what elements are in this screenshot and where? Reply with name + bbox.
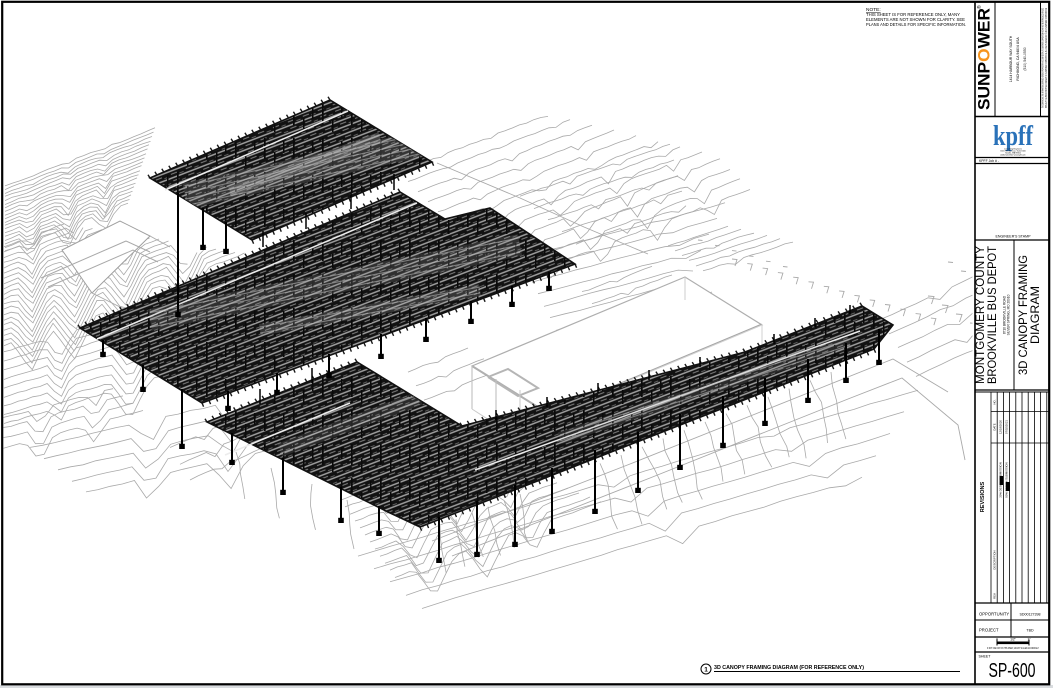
svg-text:SP-600: SP-600 bbox=[989, 660, 1036, 682]
svg-text:SD00127398: SD00127398 bbox=[1020, 613, 1041, 617]
svg-text:3D CANOPY FRAMING: 3D CANOPY FRAMING bbox=[1018, 255, 1030, 375]
svg-text:OPPORTUNITY: OPPORTUNITY bbox=[979, 612, 1009, 617]
svg-text:DIAGRAM: DIAGRAM bbox=[1030, 286, 1042, 344]
svg-text:3D CANOPY FRAMING DIAGRAM (FOR: 3D CANOPY FRAMING DIAGRAM (FOR REFERENCE… bbox=[714, 665, 864, 671]
svg-text:THIS DRAWING AND THE INFORMATI: THIS DRAWING AND THE INFORMATION CONTAIN… bbox=[1041, 8, 1045, 108]
svg-text:MONTGOMERY COUNTY: MONTGOMERY COUNTY bbox=[975, 246, 987, 384]
svg-text:DATE: DATE bbox=[993, 423, 997, 430]
svg-text:12/18/2020: 12/18/2020 bbox=[999, 420, 1003, 434]
svg-text:PLANS AND DETAILS FOR SPECIFIC: PLANS AND DETAILS FOR SPECIFIC INFORMATI… bbox=[866, 22, 966, 28]
svg-text:PROJECT: PROJECT bbox=[979, 628, 999, 633]
svg-text:1/2": 1/2" bbox=[1010, 638, 1016, 642]
svg-text:NO.: NO. bbox=[993, 399, 997, 404]
svg-text:RICHMOND, CA 94804 USA: RICHMOND, CA 94804 USA bbox=[1016, 37, 1020, 81]
svg-text:SHEET: SHEET bbox=[979, 655, 992, 659]
svg-text:1414 HARBOUR WAY SOUTH: 1414 HARBOUR WAY SOUTH bbox=[1009, 35, 1013, 82]
svg-text:IF NOT ONE INCH ON THIS SHEET,: IF NOT ONE INCH ON THIS SHEET, ADJUST SC… bbox=[987, 647, 1039, 650]
svg-text:WITHOUT THE PRIOR WRITTEN CONS: WITHOUT THE PRIOR WRITTEN CONSENT OF SUN… bbox=[1044, 8, 1048, 108]
svg-text:SILVER SPRING, MD 20910: SILVER SPRING, MD 20910 bbox=[1007, 294, 1011, 335]
svg-text:07/02/2021: 07/02/2021 bbox=[1005, 420, 1009, 434]
svg-text:kpff: kpff bbox=[993, 121, 1034, 152]
svg-text:REV: REV bbox=[993, 593, 997, 599]
svg-text:®: ® bbox=[976, 5, 983, 9]
svg-text:KPFF Job # -: KPFF Job # - bbox=[979, 159, 999, 163]
svg-text:(206) 622-5822 www.kpff.com: (206) 622-5822 www.kpff.com bbox=[1000, 155, 1026, 157]
svg-text:BROOKVILLE BUS DEPOT: BROOKVILLE BUS DEPOT bbox=[987, 246, 999, 384]
svg-text:90% DESIGN SUBMISSION: 90% DESIGN SUBMISSION bbox=[1005, 462, 1009, 497]
svg-text:SUNPOWER: SUNPOWER bbox=[976, 8, 994, 110]
svg-text:(510) 540-0550: (510) 540-0550 bbox=[1023, 47, 1027, 70]
svg-text:TBD: TBD bbox=[1026, 629, 1034, 633]
svg-text:1: 1 bbox=[704, 667, 708, 674]
svg-text:ENGINEER'S STAMP: ENGINEER'S STAMP bbox=[996, 235, 1032, 239]
svg-text:REVISIONS: REVISIONS bbox=[980, 482, 986, 513]
svg-text:DESCRIPTION: DESCRIPTION bbox=[993, 550, 997, 569]
